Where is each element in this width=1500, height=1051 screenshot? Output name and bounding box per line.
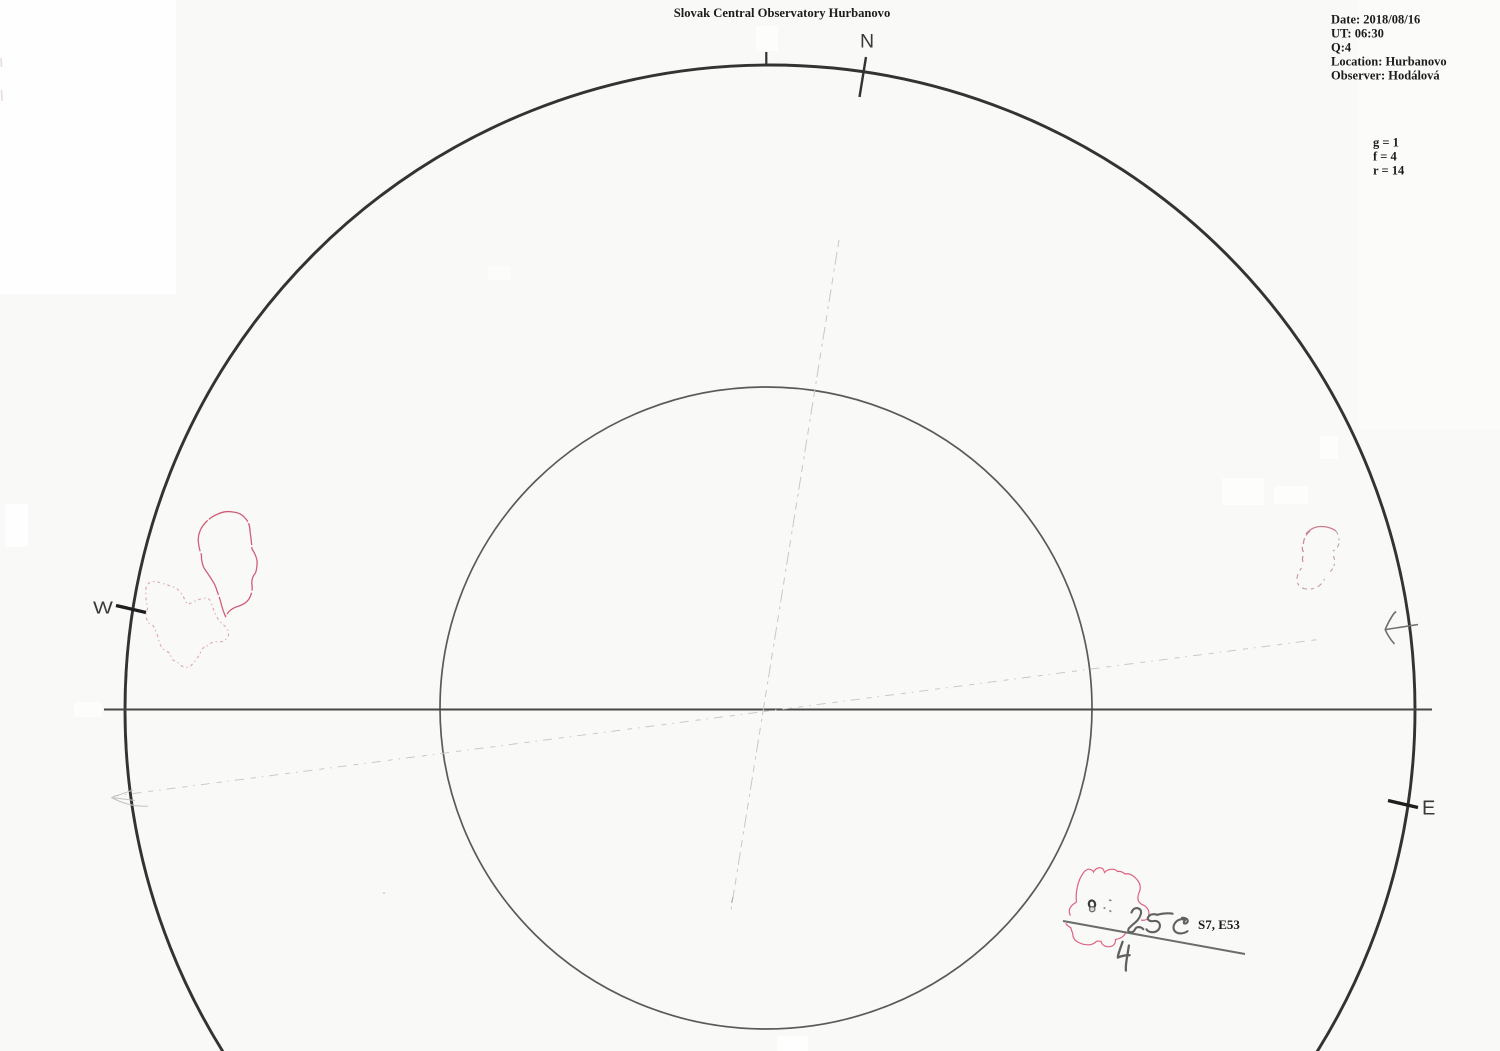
svg-text:W: W (93, 598, 113, 618)
svg-text:N: N (860, 31, 874, 53)
svg-text:f = 4: f = 4 (1373, 150, 1398, 164)
svg-text:Slovak Central Observatory Hur: Slovak Central Observatory Hurbanovo (674, 6, 891, 20)
svg-text:r = 14: r = 14 (1373, 164, 1405, 178)
svg-text:g = 1: g = 1 (1373, 136, 1399, 150)
svg-text:Location: Hurbanovo: Location: Hurbanovo (1331, 55, 1447, 69)
svg-text:Observer: Hodálová: Observer: Hodálová (1331, 69, 1440, 83)
svg-text:S7, E53: S7, E53 (1198, 917, 1240, 932)
svg-text:UT: 06:30: UT: 06:30 (1331, 27, 1384, 41)
svg-text:E: E (1422, 798, 1435, 820)
svg-text:Date: 2018/08/16: Date: 2018/08/16 (1331, 13, 1420, 27)
svg-text:Q:4: Q:4 (1331, 41, 1352, 55)
